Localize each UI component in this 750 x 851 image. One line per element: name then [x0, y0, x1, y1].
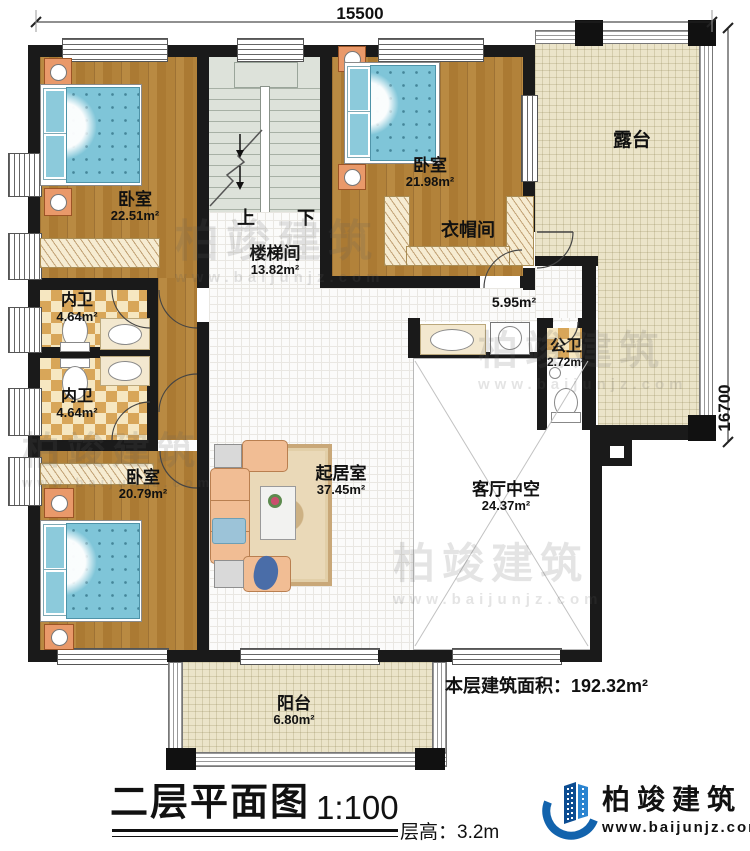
- balcony-post-left: [166, 748, 196, 770]
- window-left-4: [8, 388, 42, 436]
- window-left-2: [8, 233, 42, 280]
- room-label-bath-lower: 内卫 4.64m²: [42, 388, 112, 420]
- title-underline-thick: [112, 829, 398, 832]
- room-label-terrace: 露台: [592, 130, 672, 151]
- stair-treads-right: [268, 88, 320, 212]
- balcony-rail-bottom: [168, 752, 447, 767]
- wall-right-lower: [590, 425, 602, 662]
- room-label-bath-upper: 内卫 4.64m²: [42, 292, 112, 324]
- title-underline-thin: [112, 836, 398, 837]
- stair-divider: [260, 86, 270, 214]
- stair-down-label: 下: [292, 208, 320, 228]
- terrace-rail-top: [535, 30, 713, 44]
- balcony-post-right: [415, 748, 445, 770]
- publicbath-toilet-tank: [551, 412, 581, 423]
- wall-living-left: [197, 322, 209, 650]
- chimney-notch-inner: [610, 446, 624, 458]
- pillow: [44, 525, 66, 570]
- stair-landing: [234, 62, 298, 88]
- room-label-bedroom-bl: 卧室 20.79m²: [93, 468, 193, 502]
- room-label-bedroom-tr: 卧室 21.98m²: [380, 156, 480, 190]
- wall-publicbath-left: [537, 318, 547, 430]
- wall-bedroomtl-bottom: [28, 278, 158, 290]
- hallway-area-label: 5.95m²: [474, 295, 554, 311]
- window-left-3: [8, 307, 42, 353]
- brand-name: 柏竣建筑: [602, 784, 742, 815]
- side-table: [214, 560, 244, 588]
- sofa-towel: [212, 518, 246, 544]
- stair-up-label: 上: [232, 208, 260, 228]
- wall-stair-left-upper: [197, 45, 209, 288]
- washer-drum: [498, 326, 522, 350]
- terrace-post-2: [688, 20, 716, 46]
- wall-bath-bottom: [28, 440, 158, 451]
- floor-area-text: 本层建筑面积：192.32m²: [445, 676, 648, 696]
- mattress: [370, 65, 436, 161]
- sink-upper: [108, 324, 142, 345]
- room-label-void: 客厅中空 24.37m²: [456, 480, 556, 514]
- balcony-rail-left: [168, 662, 183, 756]
- hall-sink: [430, 329, 474, 351]
- pillow: [348, 67, 370, 112]
- window-top-bedroomtl: [62, 38, 168, 62]
- wall-bottom-b: [167, 650, 240, 662]
- terrace-floor: [535, 42, 700, 262]
- nightstand: [44, 188, 72, 216]
- wall-bottom-d: [560, 650, 602, 662]
- pillow: [44, 89, 66, 134]
- loveseat: [242, 440, 288, 472]
- terrace-post-1: [575, 20, 603, 46]
- side-table: [214, 444, 242, 468]
- nightstand: [338, 164, 366, 190]
- window-bottom-void: [452, 648, 562, 665]
- window-top-bedroomtr: [378, 38, 484, 62]
- vestibule-floor: [158, 278, 197, 440]
- dimension-top: 15500: [330, 4, 390, 24]
- scale-label: 1:100: [316, 790, 399, 827]
- nightstand: [44, 58, 72, 86]
- floor-height-label: 层高：3.2m: [400, 822, 499, 843]
- long-sofa: [210, 468, 250, 564]
- terrace-floor-lower: [598, 262, 700, 425]
- room-label-public-bath: 公卫 2.72m²: [538, 338, 594, 369]
- pillow: [348, 112, 370, 157]
- pillow: [44, 134, 66, 179]
- wall-publicbath-top-a: [537, 318, 553, 328]
- wall-terrace-left-c: [523, 268, 535, 290]
- page-title: 二层平面图: [110, 782, 310, 825]
- terrace-post-3: [688, 415, 716, 441]
- room-label-stairwell: 楼梯间 13.82m²: [235, 244, 315, 278]
- terrace-rail-right: [699, 30, 713, 439]
- sink-lower: [108, 361, 142, 381]
- wall-bottom-a: [28, 650, 57, 662]
- wardrobe-cloak-bottom: [406, 246, 510, 266]
- nightstand: [44, 488, 74, 518]
- wall-terrace-left-a: [523, 45, 535, 95]
- wardrobe-bedroomtl: [40, 238, 160, 268]
- wall-bottom-c: [378, 650, 452, 662]
- window-bottom-bedroom: [57, 648, 169, 665]
- brand-logo-icon: [540, 778, 598, 844]
- window-balcony-door: [240, 648, 380, 665]
- wall-cloakroom-bottom-a: [332, 276, 480, 288]
- dimension-right: 16700: [715, 376, 731, 440]
- room-label-bedroom-tl: 卧室 22.51m²: [85, 190, 185, 224]
- window-left-1: [8, 153, 42, 197]
- wall-stair-right: [320, 45, 332, 288]
- mattress: [66, 87, 140, 183]
- room-label-living: 起居室 37.45m²: [291, 464, 391, 498]
- nightstand: [44, 624, 74, 650]
- stair-treads-left: [209, 88, 260, 212]
- window-top-stairwell: [237, 38, 304, 62]
- floor-plan-page: 15500 16700 卧室 22.51m² 上 下 楼梯间 13.82m² 卧…: [0, 0, 750, 851]
- pillow: [44, 570, 66, 615]
- table-decor: [268, 494, 282, 508]
- window-left-5: [8, 457, 42, 506]
- room-label-balcony: 阳台 6.80m²: [244, 694, 344, 728]
- room-label-cloakroom: 衣帽间: [418, 220, 518, 240]
- mattress: [66, 523, 140, 619]
- brand-url: www.baijunjz.com: [602, 820, 750, 837]
- window-bedroomtr-right: [521, 95, 538, 182]
- toilet-upper-tank: [60, 342, 90, 352]
